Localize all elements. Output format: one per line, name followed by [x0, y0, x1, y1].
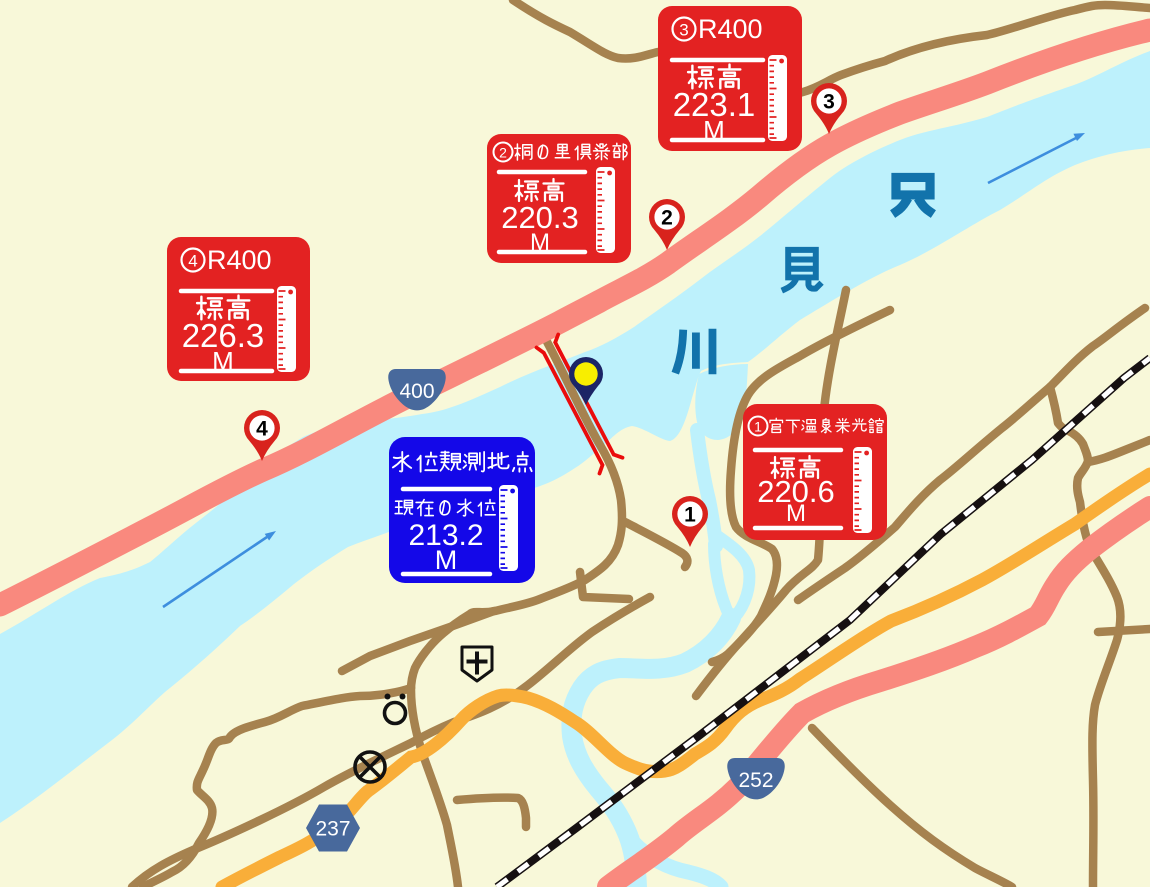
svg-text:400: 400	[399, 380, 434, 403]
svg-text:R400: R400	[698, 14, 763, 44]
svg-text:3: 3	[679, 21, 688, 40]
svg-text:3: 3	[823, 91, 835, 114]
svg-text:1: 1	[684, 504, 696, 527]
svg-text:M: M	[786, 500, 806, 527]
svg-text:252: 252	[738, 769, 773, 792]
svg-text:4: 4	[256, 418, 268, 441]
svg-text:2: 2	[499, 145, 507, 161]
svg-text:2: 2	[661, 207, 673, 230]
svg-text:4: 4	[188, 252, 197, 271]
svg-text:R400: R400	[207, 245, 272, 275]
svg-text:1: 1	[754, 419, 762, 435]
svg-text:M: M	[435, 545, 458, 575]
svg-text:237: 237	[315, 818, 350, 841]
